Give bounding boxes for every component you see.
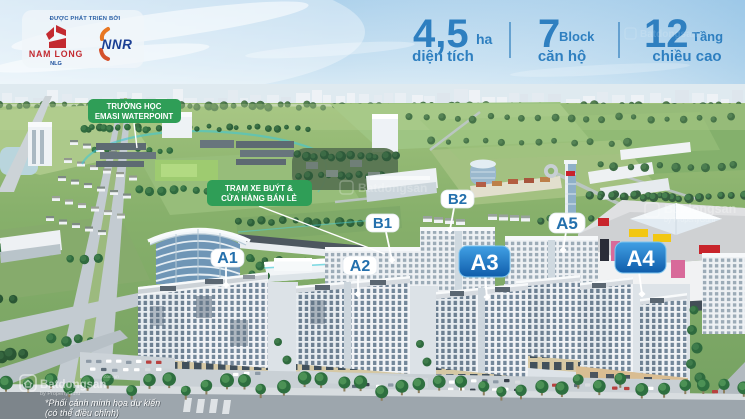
svg-text:Batdongsan: Batdongsan — [664, 202, 736, 216]
svg-text:A4: A4 — [626, 246, 655, 271]
svg-text:TRẠM XE BUÝT &: TRẠM XE BUÝT & — [225, 184, 293, 193]
svg-text:A3: A3 — [470, 250, 498, 275]
svg-text:B1: B1 — [373, 215, 392, 232]
svg-text:NLG: NLG — [50, 61, 62, 67]
svg-text:chiều cao: chiều cao — [652, 48, 721, 65]
svg-text:Batdongsan: Batdongsan — [640, 29, 698, 40]
svg-text:.com.vn: .com.vn — [103, 374, 119, 379]
svg-text:EMASI WATERPOINT: EMASI WATERPOINT — [95, 112, 173, 121]
svg-text:by PropertyGuru: by PropertyGuru — [664, 217, 715, 224]
svg-text:Batdongsan: Batdongsan — [40, 379, 106, 391]
svg-text:(có thể điều chỉnh): (có thể điều chỉnh) — [45, 408, 119, 418]
svg-text:TRƯỜNG HỌC: TRƯỜNG HỌC — [107, 102, 162, 111]
svg-text:A5: A5 — [556, 214, 578, 233]
svg-text:diện tích: diện tích — [412, 48, 474, 65]
svg-text:by PropertyGuru: by PropertyGuru — [40, 391, 80, 397]
svg-text:căn hộ: căn hộ — [538, 48, 586, 65]
svg-text:CỬA HÀNG BÁN LẺ: CỬA HÀNG BÁN LẺ — [221, 194, 297, 203]
svg-text:ha: ha — [476, 31, 493, 47]
svg-text:NAM LONG: NAM LONG — [29, 49, 83, 59]
svg-text:A1: A1 — [217, 250, 238, 267]
svg-text:Block: Block — [559, 29, 595, 44]
svg-text:B2: B2 — [448, 191, 467, 208]
svg-text:ĐƯỢC PHÁT TRIỂN BỞI: ĐƯỢC PHÁT TRIỂN BỞI — [50, 15, 121, 22]
svg-text:A2: A2 — [350, 258, 371, 275]
svg-text:*Phối cảnh minh họa dự kiến: *Phối cảnh minh họa dự kiến — [45, 398, 160, 408]
svg-text:Batdongsan: Batdongsan — [358, 181, 427, 195]
svg-text:NNR: NNR — [102, 37, 133, 52]
